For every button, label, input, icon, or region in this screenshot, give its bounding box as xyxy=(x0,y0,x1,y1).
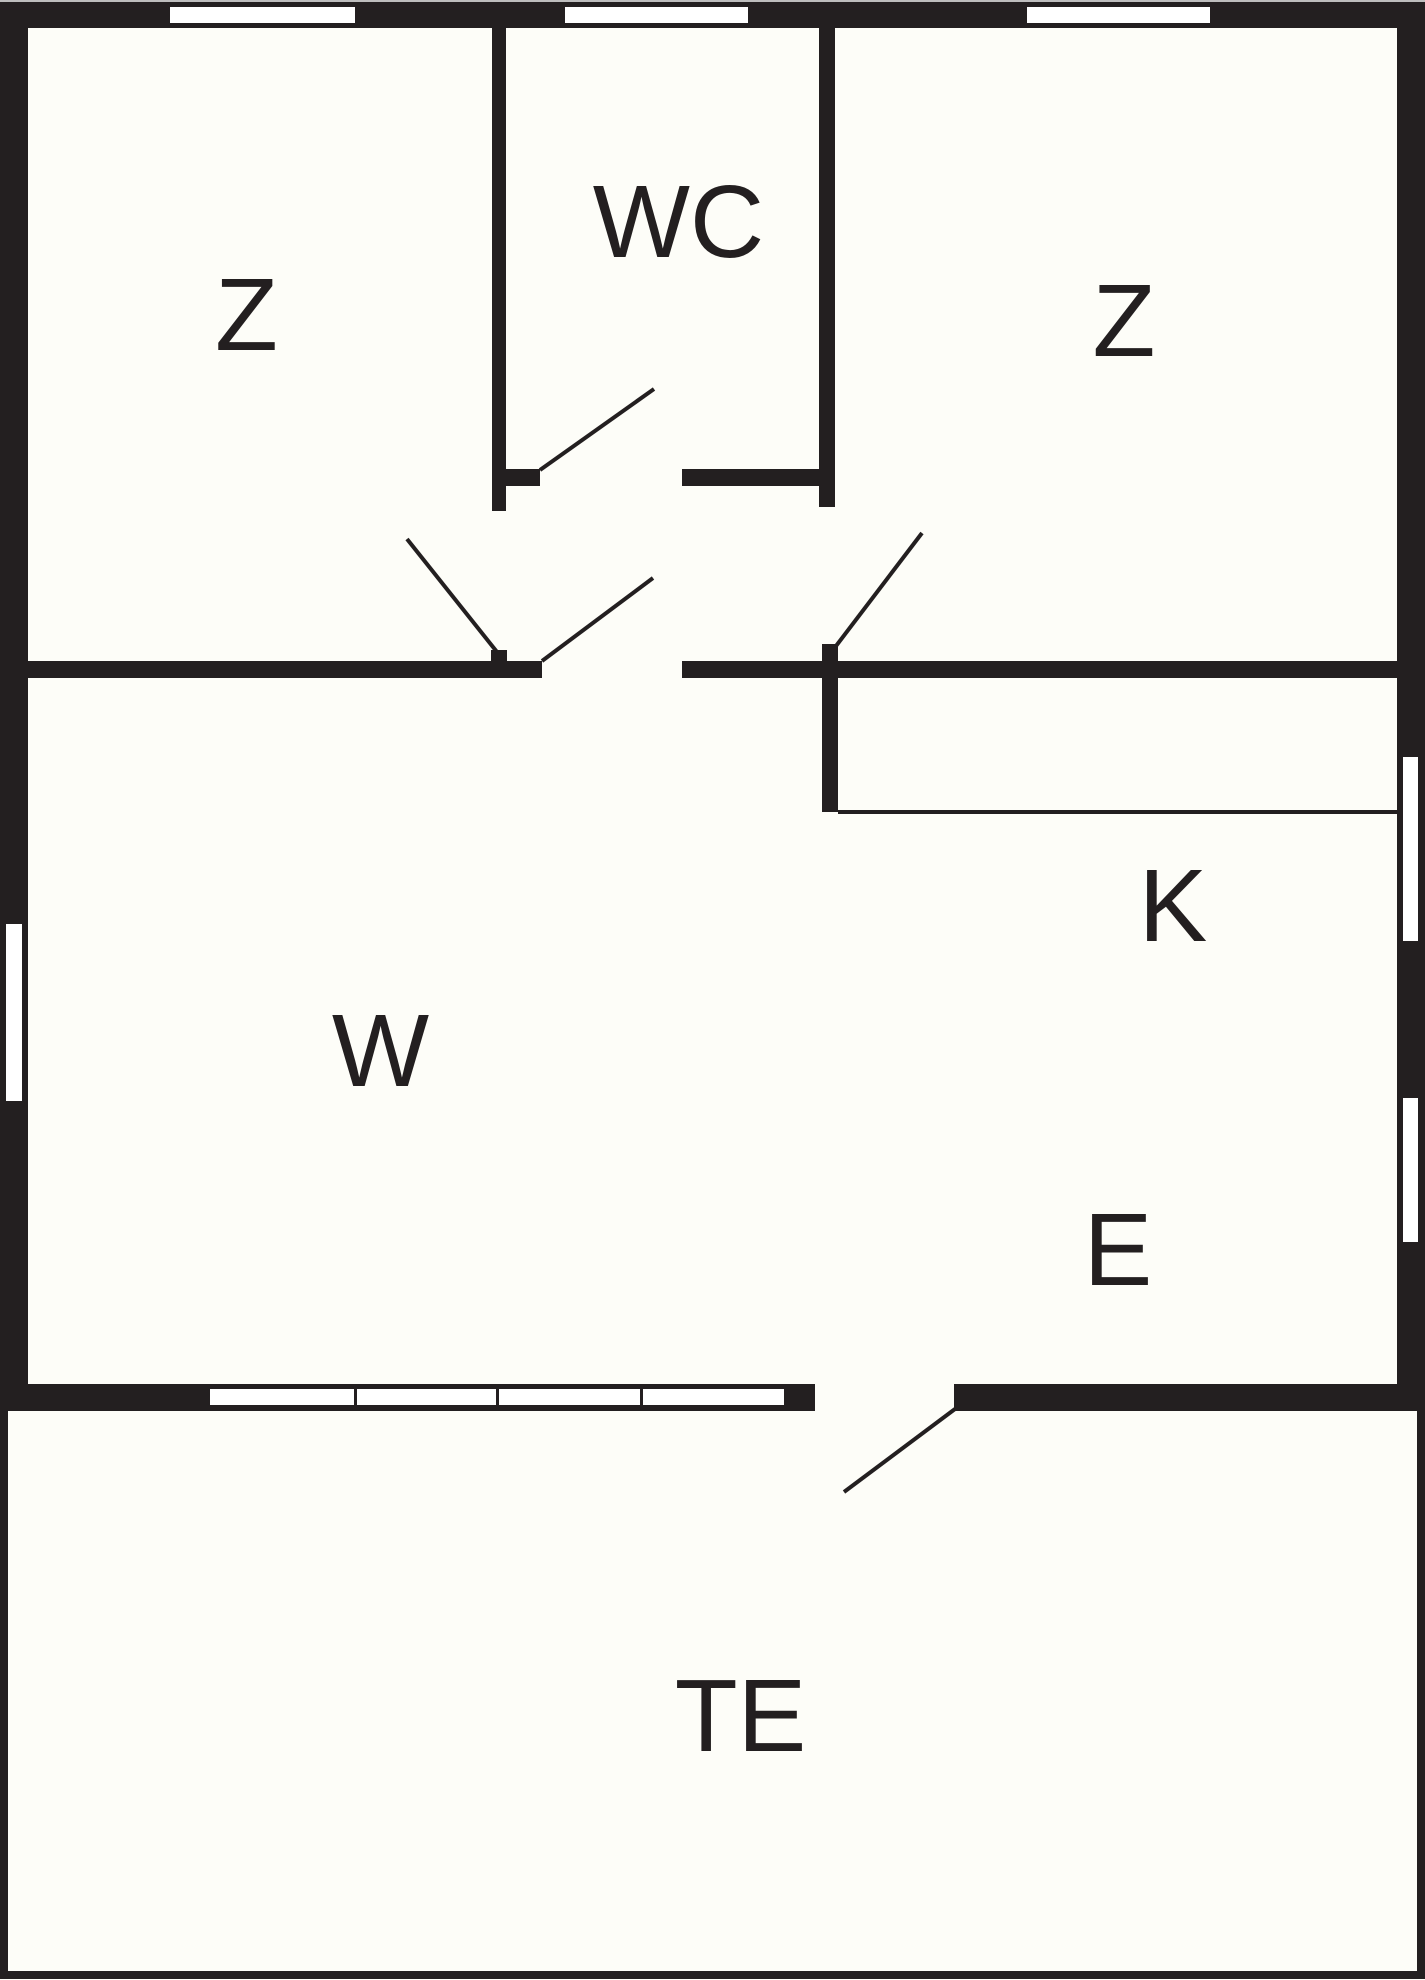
svg-text:W: W xyxy=(332,993,429,1108)
svg-text:WC: WC xyxy=(593,164,765,279)
svg-text:Z: Z xyxy=(215,257,278,372)
svg-text:Z: Z xyxy=(1093,263,1156,378)
svg-text:E: E xyxy=(1084,1192,1153,1307)
svg-text:TE: TE xyxy=(675,1658,807,1773)
svg-text:K: K xyxy=(1139,848,1208,963)
